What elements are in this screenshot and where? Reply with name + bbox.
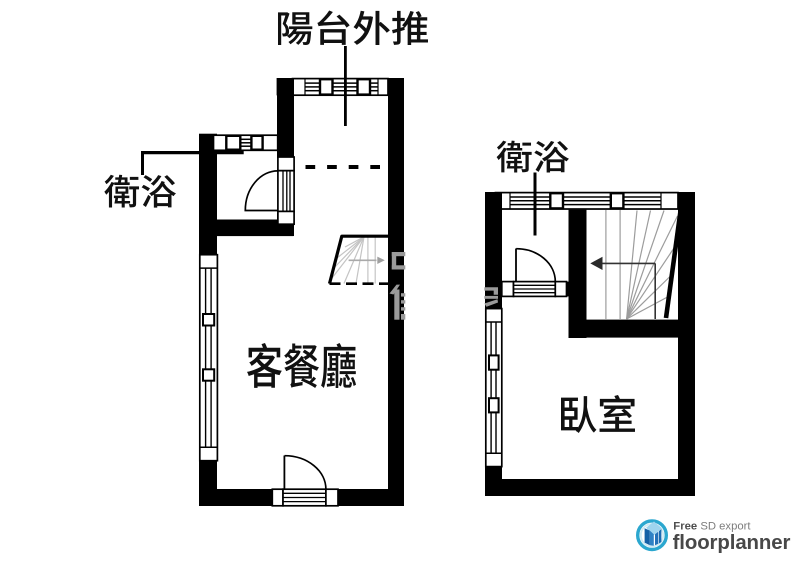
svg-text:floorplanner: floorplanner bbox=[673, 532, 791, 554]
